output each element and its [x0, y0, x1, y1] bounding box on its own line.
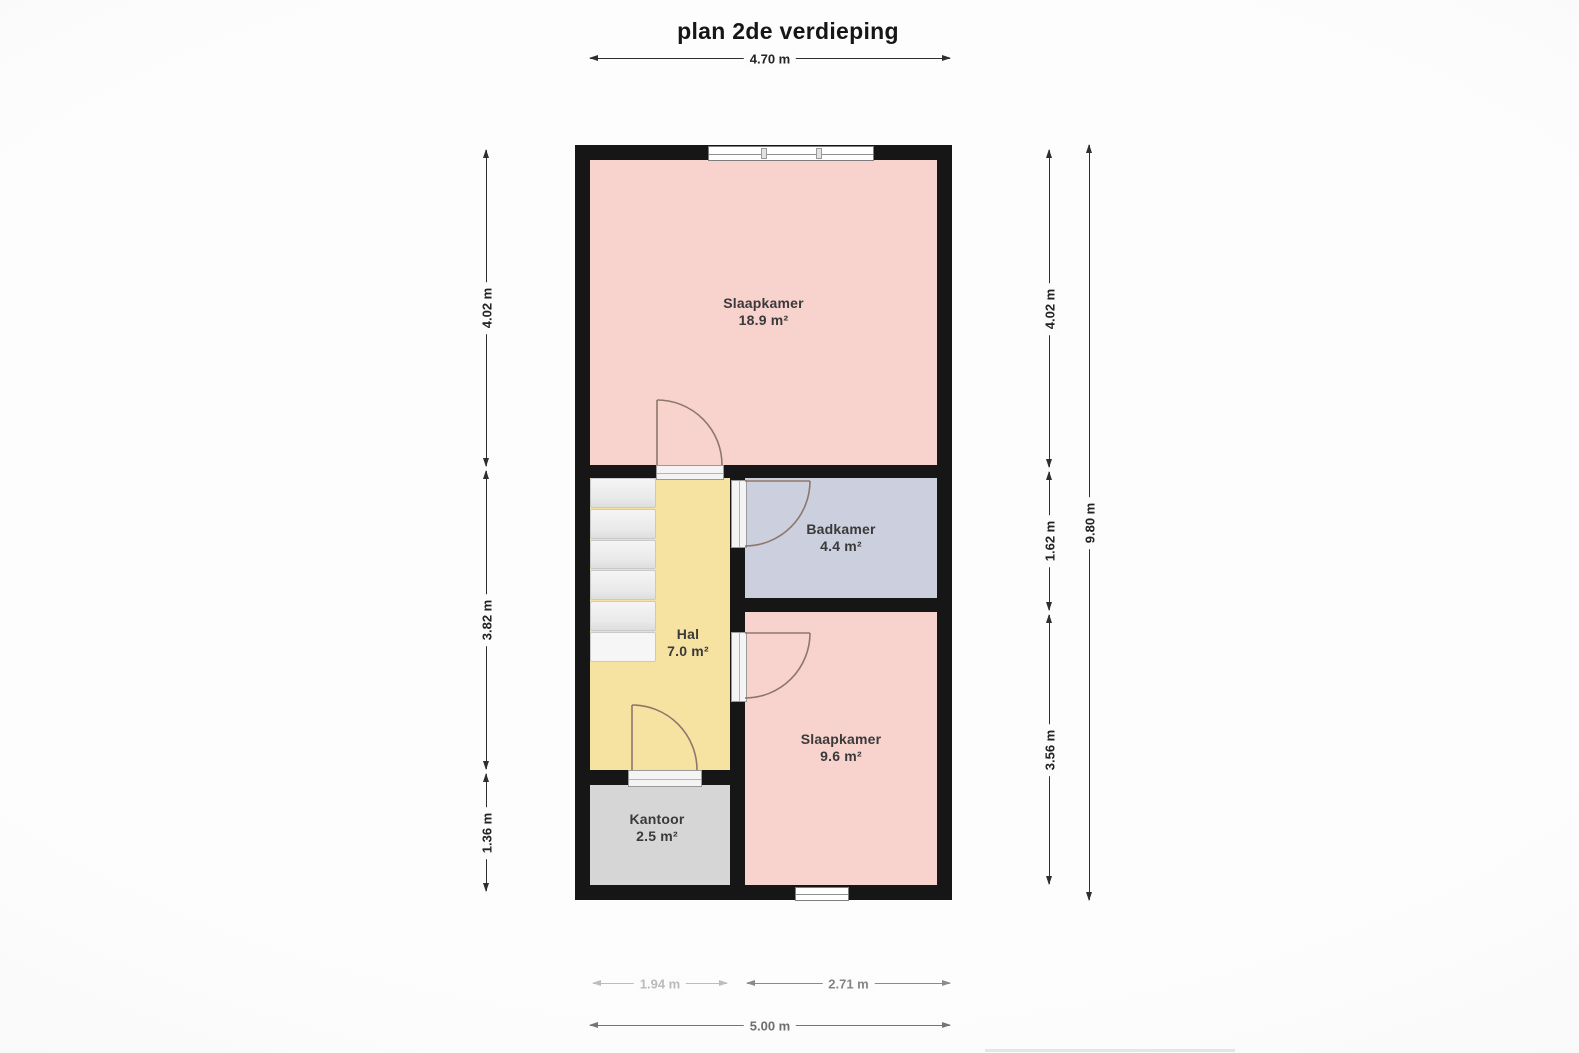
dim-right-total-label: 9.80 m — [1083, 496, 1098, 548]
dim-left-1: 4.02 m — [486, 150, 487, 466]
room-name: Slaapkamer — [683, 295, 844, 312]
dim-bottom-total: 5.00 m — [590, 1025, 950, 1026]
dim-left-2: 3.82 m — [486, 471, 487, 769]
door-slaapkamer-1 — [657, 400, 722, 465]
dim-bottom-left: 1.94 m — [593, 983, 727, 984]
room-area: 2.5 m² — [587, 828, 727, 845]
room-area: 18.9 m² — [683, 312, 844, 329]
dim-right-1-label: 4.02 m — [1043, 282, 1058, 334]
dim-right-3: 3.56 m — [1049, 615, 1050, 884]
dim-right-total: 9.80 m — [1089, 145, 1090, 900]
floor-plan-page: plan 2de verdieping 4.70 m 4.02 m 3.82 m… — [0, 0, 1579, 1053]
dim-left-2-label: 3.82 m — [480, 594, 495, 646]
room-name: Hal — [628, 626, 748, 643]
dim-bottom-left-label: 1.94 m — [634, 977, 686, 992]
room-area: 9.6 m² — [761, 748, 921, 765]
floor-plan: Slaapkamer 18.9 m² Badkamer 4.4 m² Hal 7… — [575, 145, 952, 900]
label-hal: Hal 7.0 m² — [628, 626, 748, 660]
dim-right-3-label: 3.56 m — [1043, 723, 1058, 775]
room-area: 4.4 m² — [761, 538, 921, 555]
room-name: Kantoor — [587, 811, 727, 828]
dim-left-3-label: 1.36 m — [480, 806, 495, 858]
label-slaapkamer-1: Slaapkamer 18.9 m² — [683, 295, 844, 329]
artifact-line — [985, 1049, 1235, 1052]
door-kantoor — [632, 705, 697, 770]
room-area: 7.0 m² — [628, 643, 748, 660]
dim-bottom-right-label: 2.71 m — [822, 977, 874, 992]
label-slaapkamer-2: Slaapkamer 9.6 m² — [761, 731, 921, 765]
plan-title: plan 2de verdieping — [588, 18, 988, 45]
dim-bottom-total-label: 5.00 m — [744, 1019, 796, 1034]
label-kantoor: Kantoor 2.5 m² — [587, 811, 727, 845]
dim-right-2: 1.62 m — [1049, 472, 1050, 610]
dim-top-width: 4.70 m — [590, 58, 950, 59]
dim-top-width-label: 4.70 m — [744, 52, 796, 67]
door-slaapkamer-2 — [745, 633, 810, 698]
dim-left-3: 1.36 m — [486, 774, 487, 891]
dim-right-2-label: 1.62 m — [1043, 515, 1058, 567]
room-name: Badkamer — [761, 521, 921, 538]
dim-right-1: 4.02 m — [1049, 150, 1050, 467]
dim-bottom-right: 2.71 m — [747, 983, 950, 984]
room-name: Slaapkamer — [761, 731, 921, 748]
label-badkamer: Badkamer 4.4 m² — [761, 521, 921, 555]
dim-left-1-label: 4.02 m — [480, 282, 495, 334]
